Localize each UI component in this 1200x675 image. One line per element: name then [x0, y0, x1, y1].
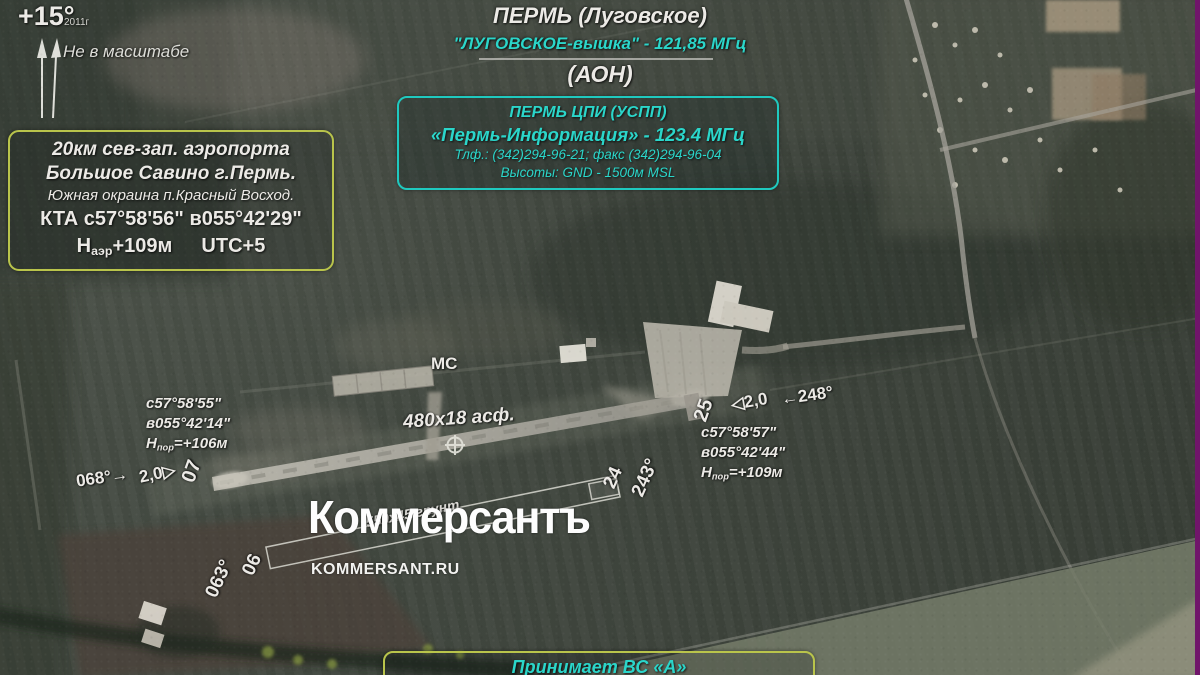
not-to-scale-note: Не в масштабе: [63, 42, 189, 62]
declination-year: 2011г: [64, 17, 89, 28]
loc-line2: Большое Савино г.Пермь.: [10, 162, 332, 186]
thr07-coordinates: с57°58'55" в055°42'14" Нпор=+106м: [146, 394, 230, 457]
loc-line1: 20км сев-зап. аэропорта: [10, 138, 332, 162]
edge-stripe: [1195, 0, 1200, 675]
thr25-coordinates: с57°58'57" в055°42'44" Нпор=+109м: [701, 423, 785, 486]
cpi-frequency: «Пермь-Информация» - 123.4 МГц: [399, 123, 777, 146]
kta-coordinates: КТА с57°58'56" в055°42'29": [10, 206, 332, 233]
parking-label: МС: [431, 354, 457, 374]
utc-offset: UTC+5: [201, 235, 265, 257]
cpi-info-box: ПЕРМЬ ЦПИ (УСПП) «Пермь-Информация» - 12…: [397, 96, 779, 190]
loc-line3: Южная окраина п.Красный Восход.: [10, 186, 332, 206]
cpi-altitudes: Высоты: GND - 1500м MSL: [399, 164, 777, 182]
aon-label: (АОН): [0, 61, 1200, 88]
chart-title: ПЕРМЬ (Луговское): [0, 3, 1200, 29]
cpi-phone: Тлф.: (342)294-96-21; факс (342)294-96-0…: [399, 146, 777, 164]
kommersant-url: KOMMERSANT.RU: [311, 561, 460, 579]
aerodrome-elevation: Наэр+109м UTC+5: [10, 233, 332, 264]
accepts-aircraft-label: Принимает ВС «А»: [385, 657, 813, 675]
header-underline: [479, 58, 713, 60]
cpi-title: ПЕРМЬ ЦПИ (УСПП): [399, 103, 777, 123]
location-info-box: 20км сев-зап. аэропорта Большое Савино г…: [8, 130, 334, 271]
kommersant-logo: Коммерсантъ: [308, 490, 590, 544]
aerodrome-chart: ПЕРМЬ (Луговское) "ЛУГОВСКОЕ-вышка" - 12…: [0, 0, 1200, 675]
ms-apron: [332, 366, 434, 396]
accepts-aircraft-box: Принимает ВС «А»: [383, 651, 815, 675]
